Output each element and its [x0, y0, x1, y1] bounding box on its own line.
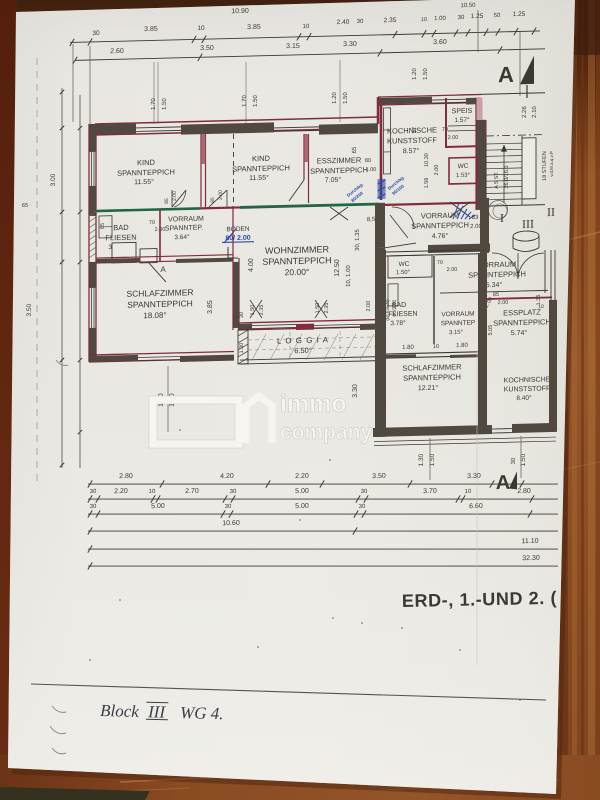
svg-text:3.50: 3.50: [26, 303, 33, 316]
svg-text:3.50: 3.50: [200, 45, 214, 52]
svg-text:SCHLAFZIMMER: SCHLAFZIMMER: [126, 287, 193, 299]
svg-text:30: 30: [225, 504, 232, 510]
svg-text:VORRAUM: VORRAUM: [168, 216, 204, 224]
svg-text:1.20: 1.20: [412, 67, 418, 79]
svg-text:6.34°: 6.34°: [486, 281, 503, 289]
svg-text:WC: WC: [458, 163, 469, 170]
svg-text:1.50°: 1.50°: [396, 270, 411, 276]
svg-text:11.55°: 11.55°: [134, 178, 154, 186]
svg-text:57: 57: [412, 127, 418, 133]
svg-text:18.08°: 18.08°: [143, 311, 166, 321]
svg-text:SPANNTEP: SPANNTEP: [441, 320, 476, 328]
svg-text:85: 85: [210, 197, 216, 203]
svg-text:30: 30: [90, 504, 97, 510]
svg-text:30: 30: [458, 15, 465, 21]
svg-text:1.53°: 1.53°: [456, 173, 471, 179]
svg-text:5.74°: 5.74°: [511, 329, 528, 337]
svg-text:SPANNTEPPICH: SPANNTEPPICH: [310, 165, 368, 175]
svg-text:2.35: 2.35: [259, 305, 265, 316]
svg-text:18 STUFEN: 18 STUFEN: [542, 151, 548, 181]
svg-text:12.21°: 12.21°: [418, 384, 439, 393]
svg-text:2.00: 2.00: [366, 301, 372, 312]
svg-text:3.85: 3.85: [247, 24, 261, 31]
svg-text:2.60: 2.60: [110, 48, 124, 55]
svg-text:10: 10: [197, 25, 205, 32]
svg-text:2.20: 2.20: [114, 488, 128, 495]
svg-text:80/ 2.00: 80/ 2.00: [225, 235, 250, 243]
svg-text:30: 30: [357, 19, 364, 25]
svg-text:3.00: 3.00: [50, 173, 57, 186]
svg-text:ESSPLATZ: ESSPLATZ: [503, 308, 541, 318]
svg-text:1.30: 1.30: [418, 453, 425, 466]
svg-text:10: 10: [421, 17, 427, 23]
svg-text:8.40°: 8.40°: [516, 394, 532, 402]
svg-text:2.26: 2.26: [522, 105, 528, 117]
svg-text:10: 10: [433, 344, 439, 350]
svg-text:ERD-, 1.-UND 2. (: ERD-, 1.-UND 2. (: [402, 588, 558, 611]
svg-text:3.60: 3.60: [433, 39, 447, 46]
svg-text:2.10: 2.10: [532, 105, 538, 117]
svg-text:KUNSTSTOFF: KUNSTSTOFF: [504, 385, 551, 393]
svg-text:32.30: 32.30: [522, 555, 540, 562]
svg-text:v.d.M.a.q.v.P: v.d.M.a.q.v.P: [549, 151, 554, 177]
svg-text:1.80: 1.80: [402, 345, 414, 351]
svg-text:10.50: 10.50: [460, 3, 476, 9]
svg-text:1.58: 1.58: [424, 178, 430, 189]
svg-text:4.00: 4.00: [248, 258, 255, 272]
svg-text:1.25: 1.25: [513, 11, 526, 18]
svg-text:III: III: [522, 217, 534, 231]
svg-text:WOHNZIMMER: WOHNZIMMER: [265, 244, 329, 256]
svg-text:1.25: 1.25: [471, 13, 484, 20]
svg-text:11.10: 11.10: [522, 538, 539, 545]
svg-text:A: A: [496, 472, 510, 494]
svg-text:83: 83: [472, 215, 479, 221]
svg-text:10: 10: [538, 304, 544, 310]
svg-text:3.85: 3.85: [207, 300, 214, 314]
svg-text:3.30: 3.30: [467, 473, 481, 480]
svg-text:11.55°: 11.55°: [249, 174, 269, 182]
svg-text:7.05°: 7.05°: [325, 176, 342, 184]
svg-text:A: A: [160, 265, 166, 274]
svg-text:WC: WC: [399, 261, 410, 268]
svg-text:1.50: 1.50: [423, 67, 429, 79]
svg-text:3.50: 3.50: [372, 473, 386, 480]
svg-text:Block: Block: [100, 701, 140, 721]
svg-text:1.00: 1.00: [366, 167, 377, 173]
svg-text:KIND: KIND: [137, 158, 155, 167]
svg-text:SPANNTEPPICH: SPANNTEPPICH: [117, 167, 175, 177]
svg-text:II: II: [547, 205, 555, 219]
svg-text:SCHLAFZIMMER: SCHLAFZIMMER: [402, 362, 462, 372]
svg-text:1.50: 1.50: [343, 91, 349, 103]
svg-text:85: 85: [493, 292, 499, 298]
svg-text:65: 65: [352, 146, 358, 153]
svg-text:3.30: 3.30: [343, 41, 357, 48]
svg-text:2.00: 2.00: [448, 135, 459, 141]
svg-text:BAD: BAD: [113, 223, 129, 232]
svg-text:30, 1.35: 30, 1.35: [355, 228, 361, 250]
svg-text:5.00: 5.00: [295, 503, 309, 510]
svg-text:1.50: 1.50: [162, 97, 168, 109]
svg-text:10.60: 10.60: [222, 520, 240, 527]
svg-text:85: 85: [164, 198, 170, 204]
svg-text:30: 30: [90, 489, 97, 495]
svg-text:2.35: 2.35: [324, 303, 330, 314]
svg-text:2.00: 2.00: [155, 227, 166, 233]
svg-text:2.80: 2.80: [517, 488, 531, 495]
svg-text:3.15: 3.15: [286, 43, 300, 50]
svg-text:10: 10: [465, 489, 472, 495]
svg-text:30: 30: [511, 457, 517, 464]
svg-text:10, 1.00: 10, 1.00: [346, 264, 352, 286]
svg-text:KUNSTSTOFF: KUNSTSTOFF: [387, 135, 437, 145]
svg-text:WG 4.: WG 4.: [180, 703, 224, 723]
svg-text:2.00: 2.00: [447, 267, 458, 273]
svg-text:6.60: 6.60: [469, 503, 483, 510]
svg-text:30: 30: [92, 30, 100, 37]
svg-text:26.0/16.0: 26.0/16.0: [504, 165, 510, 188]
svg-text:1.57°: 1.57°: [454, 116, 470, 124]
svg-text:1.80: 1.80: [456, 343, 468, 349]
svg-text:4.20: 4.20: [220, 473, 234, 480]
svg-text:20.00°: 20.00°: [285, 267, 310, 278]
svg-text:12.50: 12.50: [334, 259, 341, 277]
svg-text:6.50°: 6.50°: [294, 346, 312, 355]
svg-text:I: I: [500, 211, 504, 225]
svg-text:2.00: 2.00: [434, 165, 440, 176]
svg-text:30: 30: [359, 504, 366, 510]
svg-text:SPANNTEPPICH: SPANNTEPPICH: [411, 220, 469, 230]
svg-text:3.70: 3.70: [423, 488, 437, 495]
svg-text:3.85: 3.85: [144, 26, 158, 33]
svg-text:1.50: 1.50: [253, 94, 259, 106]
svg-text:SPANNTEPPICH: SPANNTEPPICH: [127, 298, 192, 310]
svg-text:SPANNTEPPICH: SPANNTEPPICH: [493, 317, 551, 327]
svg-text:2.00: 2.00: [172, 191, 178, 201]
svg-text:1.20: 1.20: [332, 91, 338, 103]
svg-text:3.15°: 3.15°: [449, 330, 464, 336]
svg-text:3.30: 3.30: [352, 384, 359, 398]
svg-text:2.35: 2.35: [384, 17, 397, 24]
svg-text:2.00: 2.00: [498, 300, 509, 306]
svg-text:2.80: 2.80: [119, 473, 133, 480]
svg-text:1.30: 1.30: [239, 343, 245, 354]
svg-text:30: 30: [230, 489, 237, 495]
svg-text:70: 70: [442, 127, 448, 133]
svg-text:5.00: 5.00: [295, 488, 309, 495]
svg-text:2.00: 2.00: [218, 190, 224, 200]
svg-text:1.70: 1.70: [242, 94, 248, 106]
svg-text:company: company: [280, 421, 373, 444]
svg-text:BODEN: BODEN: [226, 226, 249, 234]
svg-text:4.76°: 4.76°: [432, 232, 449, 240]
svg-text:3.78°: 3.78°: [390, 319, 406, 327]
svg-text:5.05: 5.05: [488, 325, 494, 336]
svg-text:A: A: [498, 62, 514, 87]
svg-text:3.64°: 3.64°: [174, 233, 190, 241]
svg-text:65: 65: [100, 223, 106, 229]
svg-text:SPANNTEPPICH: SPANNTEPPICH: [232, 163, 290, 173]
svg-text:SPANNTEPPICH: SPANNTEPPICH: [403, 372, 461, 382]
svg-text:50: 50: [494, 13, 501, 19]
svg-text:immo: immo: [280, 390, 347, 418]
svg-text:10: 10: [149, 489, 156, 495]
svg-text:80: 80: [365, 158, 371, 164]
svg-text:70: 70: [437, 260, 443, 266]
svg-text:30: 30: [239, 312, 245, 318]
svg-text:SPANNTEPPICH: SPANNTEPPICH: [262, 255, 331, 267]
svg-text:5.00: 5.00: [151, 503, 165, 510]
svg-text:8.57°: 8.57°: [403, 147, 420, 155]
svg-text:10.90: 10.90: [231, 8, 249, 15]
svg-text:8,5: 8,5: [367, 217, 376, 223]
svg-text:90/2.40: 90/2.40: [392, 299, 398, 316]
svg-text:KOCHNISCHE: KOCHNISCHE: [504, 376, 551, 384]
svg-text:2.40: 2.40: [337, 19, 350, 26]
svg-text:70: 70: [149, 220, 155, 226]
svg-text:2.70: 2.70: [185, 488, 199, 495]
svg-text:L O G G I A: L O G G I A: [277, 335, 329, 345]
svg-text:KIND: KIND: [252, 154, 270, 163]
svg-text:ESSZIMMER: ESSZIMMER: [317, 155, 362, 165]
svg-text:30: 30: [361, 489, 368, 495]
svg-text:VORRAUM: VORRAUM: [441, 311, 474, 319]
svg-text:10.30: 10.30: [424, 153, 430, 167]
svg-text:10: 10: [303, 24, 310, 30]
svg-text:A 5 ST.: A 5 ST.: [494, 171, 500, 189]
svg-text:65: 65: [22, 203, 28, 209]
svg-text:(BOGEN): (BOGEN): [385, 299, 391, 321]
svg-text:1.00: 1.00: [434, 16, 446, 22]
svg-text:2.20: 2.20: [295, 473, 309, 480]
svg-text:SPEIS: SPEIS: [452, 108, 473, 116]
svg-text:SPANNTEP.: SPANNTEP.: [165, 225, 203, 233]
svg-text:1.70: 1.70: [151, 97, 157, 109]
